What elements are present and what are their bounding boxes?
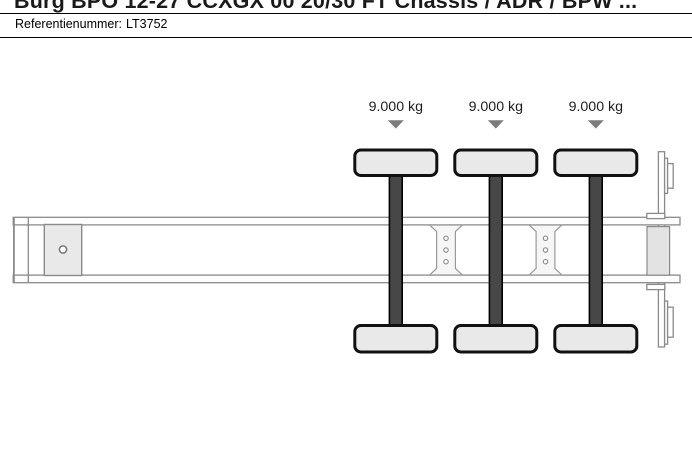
bolt-hole bbox=[543, 260, 547, 264]
bolt-hole bbox=[543, 248, 547, 252]
bolt-hole bbox=[444, 236, 448, 240]
axle-load-annotations: 9.000 kg 9.000 kg 9.000 kg bbox=[369, 99, 623, 129]
axle-load-label-3: 9.000 kg bbox=[569, 99, 623, 115]
kingpin bbox=[59, 246, 66, 253]
bolt-hole bbox=[444, 260, 448, 264]
bolt-hole bbox=[543, 236, 547, 240]
tire-axle-3-lower bbox=[555, 326, 637, 353]
crossmember-2 bbox=[529, 225, 562, 275]
frame-rail-bottom bbox=[13, 275, 680, 283]
rear-ledge-top bbox=[647, 213, 665, 218]
arrow-down-icon bbox=[488, 120, 504, 128]
tire-axle-1-upper bbox=[355, 150, 437, 176]
tire-axle-2-lower bbox=[455, 326, 537, 353]
axle-bars bbox=[389, 171, 602, 330]
kingpin-assembly bbox=[44, 225, 81, 276]
chassis-diagram: 9.000 kg 9.000 kg 9.000 kg bbox=[0, 0, 692, 460]
rear-twistlock-top bbox=[668, 164, 674, 189]
arrow-down-icon bbox=[588, 120, 604, 128]
rear-twistlock-bottom bbox=[668, 307, 674, 337]
axle-bar-2 bbox=[489, 171, 502, 330]
tire-axle-1-lower bbox=[355, 326, 437, 353]
tire-axle-3-upper bbox=[555, 150, 637, 176]
rear-crossmember-block bbox=[647, 227, 670, 276]
arrow-down-icon bbox=[388, 120, 404, 128]
tire-axle-2-upper bbox=[455, 150, 537, 176]
axle-bar-1 bbox=[389, 171, 402, 330]
axle-load-label-1: 9.000 kg bbox=[369, 99, 423, 115]
crossmember-1 bbox=[430, 225, 463, 275]
frame-rail-top bbox=[13, 217, 680, 225]
frame bbox=[13, 217, 680, 283]
listing-image-page: Burg BPO 12-27 CCXGX 00 20/30 FT Chassis… bbox=[0, 0, 692, 460]
axle-bar-3 bbox=[589, 171, 602, 330]
axle-load-label-2: 9.000 kg bbox=[469, 99, 523, 115]
bolt-hole bbox=[444, 248, 448, 252]
rear-ledge-bottom bbox=[647, 284, 665, 289]
